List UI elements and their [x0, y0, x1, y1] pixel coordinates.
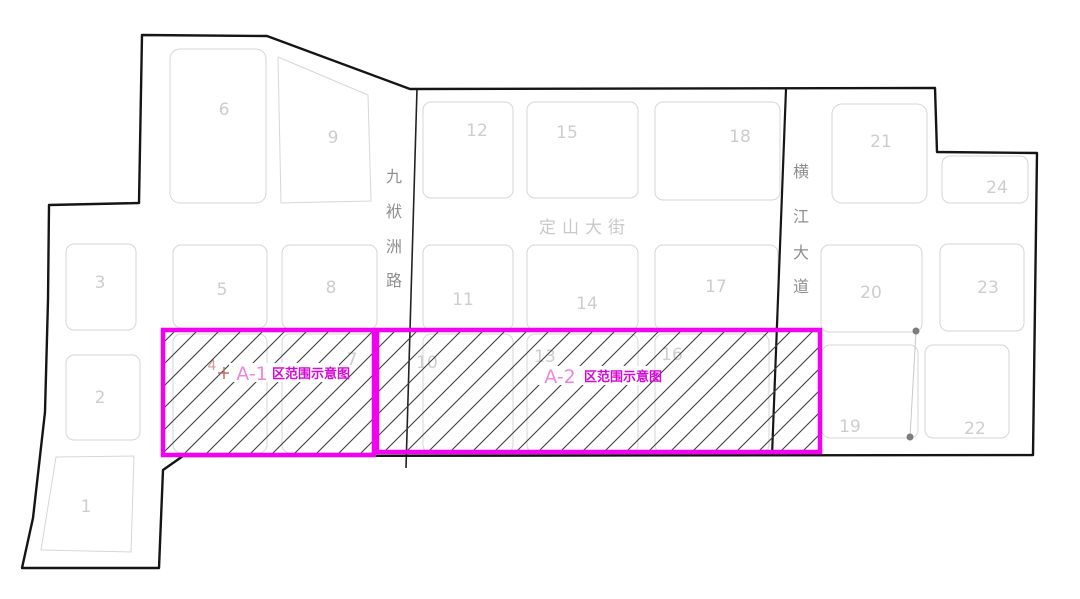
road-label-hengjiang: 横 江 大 道: [793, 162, 809, 296]
zone-a1-label-prefix: A-1: [236, 363, 268, 385]
zone-a1-label: A-1 区范围示意图: [229, 363, 350, 385]
parcel-11-shape: [423, 245, 513, 330]
parcel-24-number: 24: [986, 178, 1008, 198]
zone-a1-label-suffix: 区范围示意图: [272, 366, 350, 382]
parcel-23-number: 23: [977, 278, 999, 298]
road-label-jiufuzhou: 九 袱 洲 路: [386, 167, 402, 290]
parcel-18-shape: [655, 102, 780, 200]
parcel-11-number: 11: [452, 290, 474, 310]
road-label-char: 大: [793, 243, 809, 262]
zoning-plan-canvas: 1 2 3 4 5 6 7 8 9 10 11 12 13 14 15 16 1…: [0, 0, 1080, 599]
zone-a2-label: A-2 区范围示意图: [537, 366, 662, 388]
survey-dot-lower: [907, 434, 914, 441]
parcel-22-number: 22: [964, 419, 986, 439]
parcel-2-number: 2: [95, 388, 106, 408]
zoning-plan-svg: 1 2 3 4 5 6 7 8 9 10 11 12 13 14 15 16 1…: [0, 0, 1080, 599]
zone-a2-label-prefix: A-2: [544, 366, 576, 388]
road-label-char: 路: [386, 271, 402, 290]
road-label-char: 袱: [386, 202, 402, 221]
road-label-char: 道: [793, 277, 809, 296]
parcel-12-shape: [423, 102, 513, 198]
parcel-9-number: 9: [328, 128, 339, 148]
parcel-12-number: 12: [466, 121, 488, 141]
road-label-char: 横: [793, 162, 809, 181]
site-outer-boundary: [22, 35, 1037, 568]
parcel-19-shape: [822, 345, 918, 438]
parcel-15-number: 15: [556, 123, 578, 143]
road-label-char: 九: [386, 167, 402, 186]
parcel-14-shape: [527, 245, 638, 330]
road-label-char: 洲: [386, 237, 402, 256]
zone-a1-area: [163, 330, 374, 455]
parcel-15-shape: [527, 102, 638, 198]
parcel-20-number: 20: [860, 283, 882, 303]
survey-dot-upper: [913, 328, 920, 335]
parcel-24-shape: [942, 156, 1028, 203]
parcel-14-number: 14: [576, 294, 598, 314]
parcel-5-number: 5: [217, 280, 228, 300]
parcel-8-number: 8: [326, 278, 337, 298]
road-label-char: 江: [793, 207, 809, 226]
parcel-9-shape: [278, 57, 371, 203]
parcel-21-number: 21: [870, 132, 892, 152]
parcel-6-shape: [170, 49, 266, 203]
zone-a2-area: [377, 330, 820, 452]
parcel-1-number: 1: [81, 497, 92, 517]
parcel-17-number: 17: [705, 277, 727, 297]
survey-divider-line: [910, 331, 916, 437]
road-label-dingshan: 定山大街: [539, 218, 631, 238]
parcel-19-number: 19: [839, 417, 861, 437]
parcel-18-number: 18: [729, 127, 751, 147]
parcel-21-shape: [832, 104, 927, 203]
parcel-3-number: 3: [95, 273, 106, 293]
parcel-6-number: 6: [219, 100, 230, 120]
zone-a2-label-suffix: 区范围示意图: [584, 369, 662, 385]
